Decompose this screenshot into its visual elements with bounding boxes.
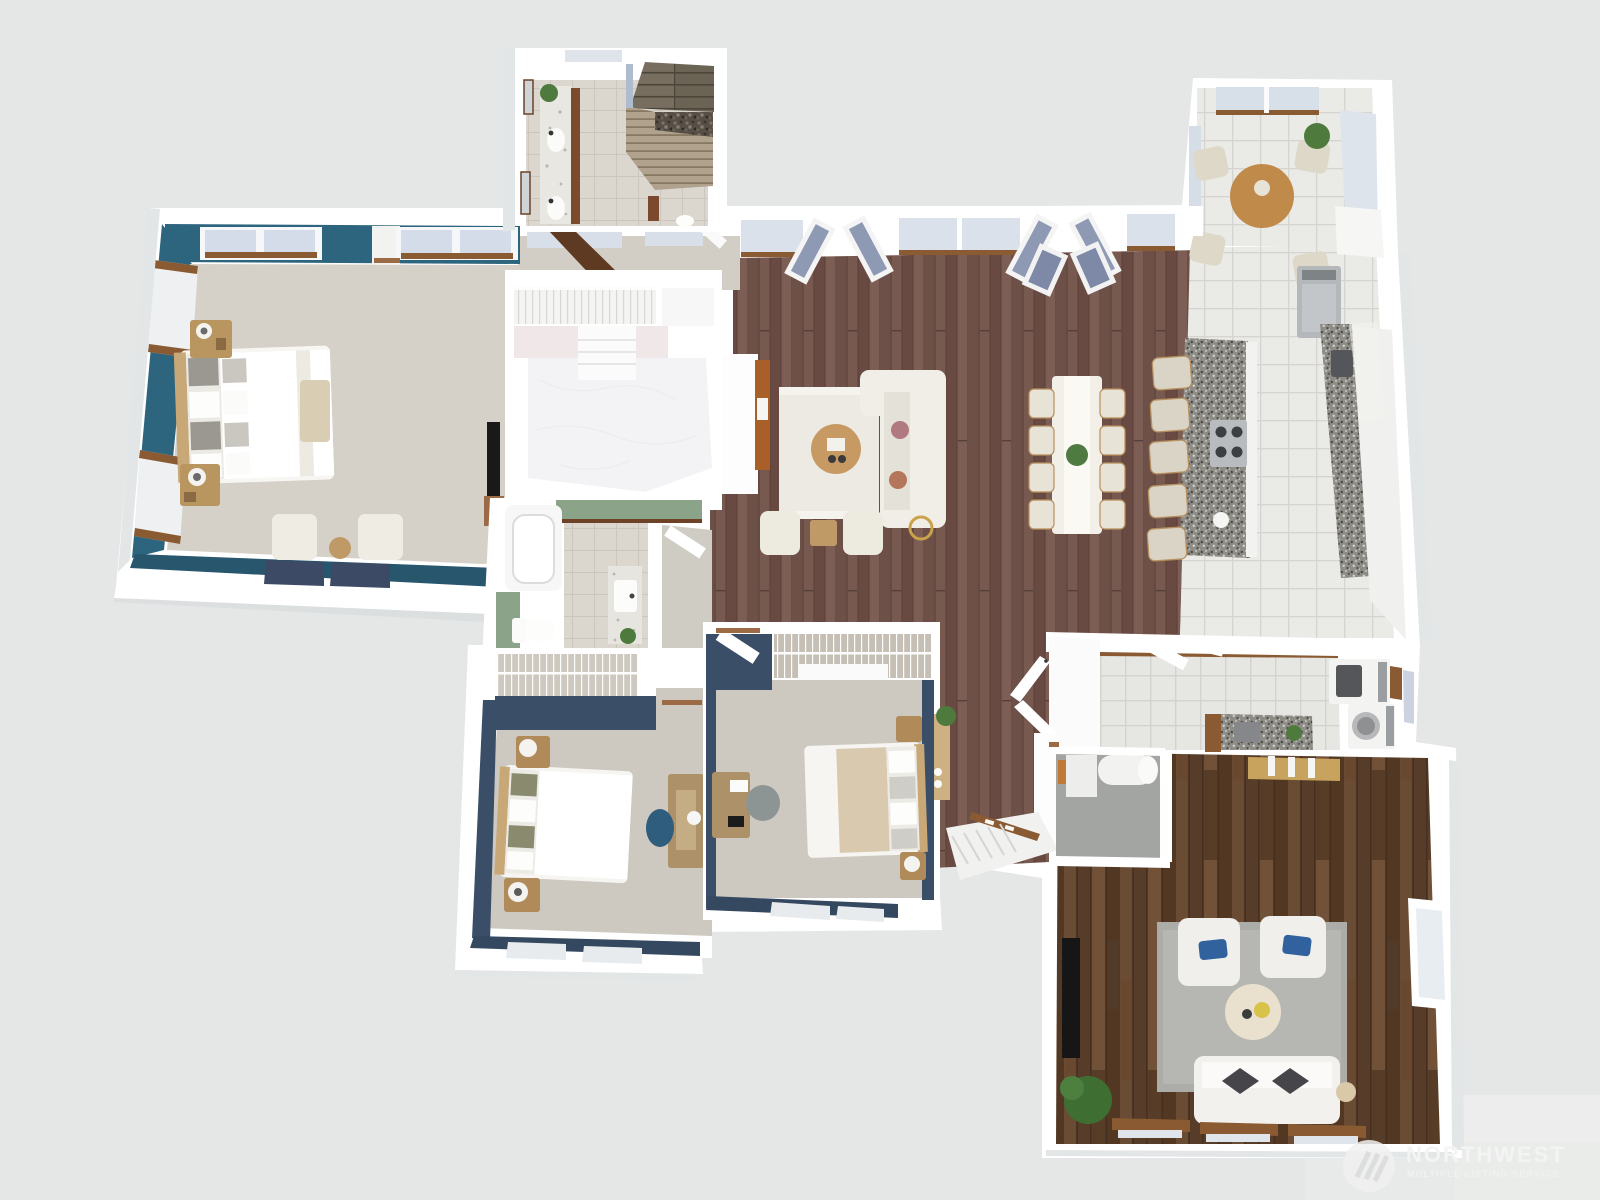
- svg-text:NORTHWEST: NORTHWEST: [1406, 1142, 1566, 1167]
- svg-text:MULTIPLE LISTING SERVICE.: MULTIPLE LISTING SERVICE.: [1407, 1169, 1564, 1179]
